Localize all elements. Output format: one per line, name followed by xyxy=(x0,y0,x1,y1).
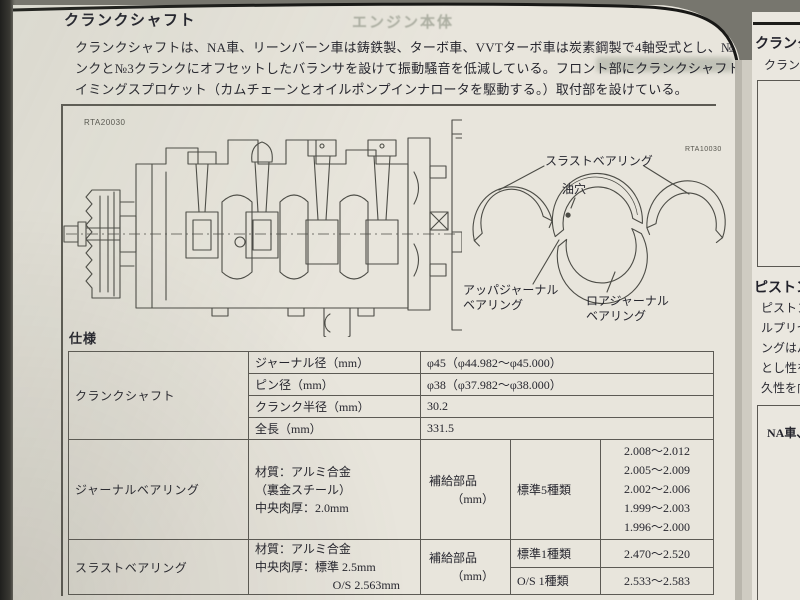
upper-journal-bearing-label: アッパジャーナル ベアリング xyxy=(463,283,558,313)
spec-value: 2.533～2.583 xyxy=(601,567,714,595)
spec-group-crankshaft: クランクシャフト xyxy=(69,352,249,440)
value-range: 2.008～2.012 xyxy=(607,442,707,461)
value-range: 1.999～2.003 xyxy=(607,499,707,518)
adjacent-page-title: クランクシ xyxy=(755,33,800,53)
spec-table: クランクシャフト ジャーナル径（mm） φ45（φ44.982～φ45.000）… xyxy=(68,351,714,595)
spec-kind-cell: O/S 1種類 xyxy=(511,567,601,595)
material-line: 材質：アルミ合金 xyxy=(255,540,414,558)
spec-group-journal-bearing: ジャーナルベアリング xyxy=(69,440,249,540)
spec-kind-cell: 標準5種類 xyxy=(511,440,601,540)
spec-supply-cell: 補給部品 （mm） xyxy=(421,440,511,540)
supply-unit: （mm） xyxy=(427,490,504,508)
adjacent-page-line: とし性を xyxy=(761,359,800,376)
spec-label: クランク半径（mm） xyxy=(249,396,421,418)
adjacent-page-box-label: NA車、 xyxy=(767,424,800,441)
table-row: スラストベアリング 材質：アルミ合金 中央肉厚：標準 2.5mm O/S 2.5… xyxy=(69,540,714,568)
adjacent-page-line: ピストン xyxy=(761,299,800,316)
spec-label: 全長（mm） xyxy=(249,418,421,440)
bleed-through-text: エンジン本体 xyxy=(352,11,454,32)
spec-group-thrust-bearing: スラストベアリング xyxy=(69,540,249,595)
value-range: 2.002～2.006 xyxy=(607,480,707,499)
lower-journal-bearing-label: ロアジャーナル ベアリング xyxy=(586,294,669,324)
intro-paragraph-line: クランクシャフトは、NA車、リーンバーン車は鋳鉄製、ターボ車、VVTターボ車は炭… xyxy=(75,38,735,58)
spec-value: φ45（φ44.982～φ45.000） xyxy=(421,352,714,374)
spec-material-cell: 材質：アルミ合金 中央肉厚：標準 2.5mm O/S 2.563mm xyxy=(249,540,421,595)
thrust-bearing-label: スラストベアリング xyxy=(545,154,653,169)
adjacent-page-line: ルプリセ xyxy=(761,319,800,336)
spec-value: φ38（φ37.982～φ38.000） xyxy=(421,374,714,396)
adjacent-page-figure-box xyxy=(757,80,800,267)
page-title: クランクシャフト xyxy=(64,9,196,30)
adjacent-page-line: 久性を向 xyxy=(761,379,800,396)
intro-paragraph-line: ンクと№3クランクにオフセットしたバランサを設けて振動騒音を低減している。フロン… xyxy=(75,59,735,79)
intro-paragraph-line: イミングスプロケット（カムチェーンとオイルポンプインナロータを駆動する。）取付部… xyxy=(75,80,735,100)
spec-value: 331.5 xyxy=(421,418,714,440)
lower-journal-bearing-label-line2: ベアリング xyxy=(586,309,669,324)
spec-heading: 仕様 xyxy=(69,328,97,347)
adjacent-page-line: ングはパ xyxy=(761,339,800,356)
spec-label: ジャーナル径（mm） xyxy=(249,352,421,374)
material-line: 材質：アルミ合金 xyxy=(255,463,414,481)
supply-label: 補給部品 xyxy=(427,549,504,567)
material-line: O/S 2.563mm xyxy=(255,576,414,594)
spec-values-cell: 2.008～2.012 2.005～2.009 2.002～2.006 1.99… xyxy=(601,440,714,540)
upper-journal-bearing-label-line1: アッパジャーナル xyxy=(463,283,558,298)
adjacent-page-header-rule xyxy=(753,22,800,25)
supply-label: 補給部品 xyxy=(427,472,504,490)
table-row: ジャーナルベアリング 材質：アルミ合金 （裏金スチール） 中央肉厚：2.0mm … xyxy=(69,440,714,540)
spec-supply-cell: 補給部品 （mm） xyxy=(421,540,511,595)
spec-value: 2.470～2.520 xyxy=(601,540,714,568)
supply-unit: （mm） xyxy=(427,567,504,585)
oil-hole-label: 油穴 xyxy=(562,182,586,197)
spec-label: ピン径（mm） xyxy=(249,374,421,396)
spec-value: 30.2 xyxy=(421,396,714,418)
material-line: 中央肉厚：2.0mm xyxy=(255,499,414,517)
material-line: （裏金スチール） xyxy=(255,481,414,499)
spec-material-cell: 材質：アルミ合金 （裏金スチール） 中央肉厚：2.0mm xyxy=(249,440,421,540)
scanned-manual-photo: クランクシャフト エンジン本体 クランクシャフトは、NA車、リーンバーン車は鋳鉄… xyxy=(0,0,800,600)
value-range: 2.005～2.009 xyxy=(607,461,707,480)
lower-journal-bearing-label-line1: ロアジャーナル xyxy=(586,294,669,309)
table-row: クランクシャフト ジャーナル径（mm） φ45（φ44.982～φ45.000） xyxy=(69,352,714,374)
adjacent-page-section-title: ピストン xyxy=(754,277,800,297)
figure-box-top-rule xyxy=(61,104,716,106)
crankshaft-section-diagram xyxy=(62,112,462,337)
value-range: 1.996～2.000 xyxy=(607,518,707,537)
spec-kind-cell: 標準1種類 xyxy=(511,540,601,568)
upper-journal-bearing-label-line2: ベアリング xyxy=(463,298,558,313)
adjacent-page-intro: クランクシ xyxy=(764,56,800,73)
material-line: 中央肉厚：標準 2.5mm xyxy=(255,558,414,576)
